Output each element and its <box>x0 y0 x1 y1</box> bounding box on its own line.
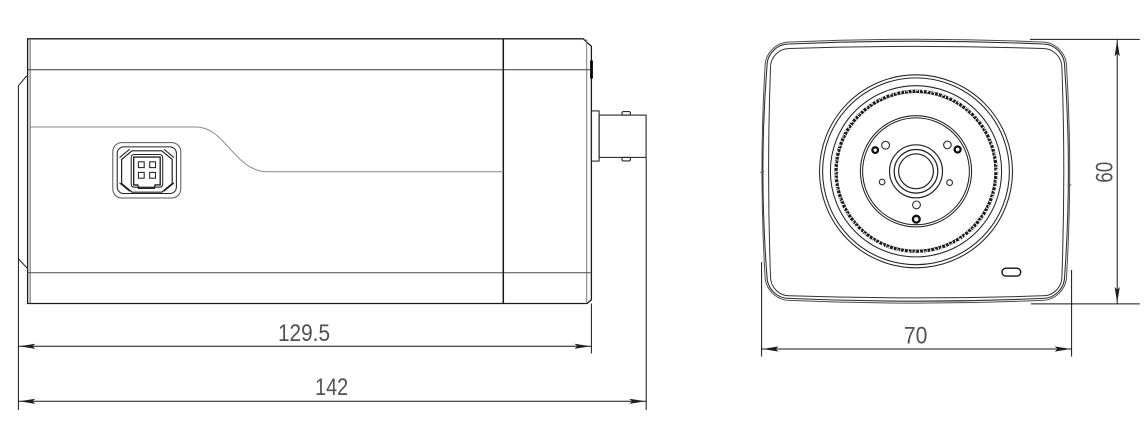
svg-text:129.5: 129.5 <box>278 320 330 347</box>
svg-text:70: 70 <box>904 323 928 350</box>
svg-text:142: 142 <box>315 374 348 401</box>
svg-text:60: 60 <box>1092 162 1119 183</box>
